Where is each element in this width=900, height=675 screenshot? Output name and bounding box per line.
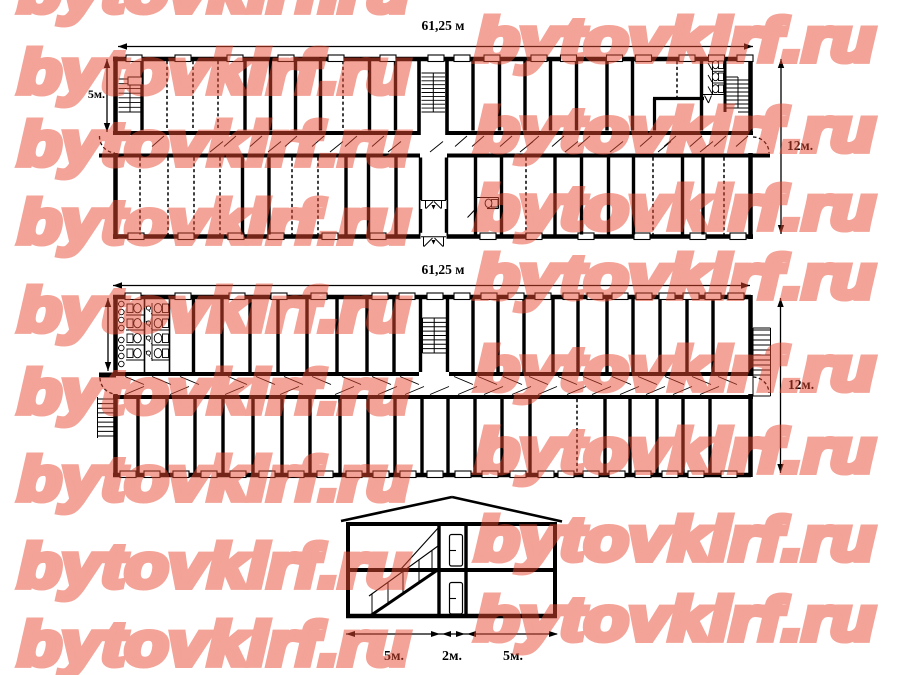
svg-text:bytovkirf.ru: bytovkirf.ru [18,0,410,25]
svg-text:bytovkirf.ru: bytovkirf.ru [475,417,875,485]
svg-text:bytovkirf.ru: bytovkirf.ru [18,276,410,344]
svg-text:bytovkirf.ru: bytovkirf.ru [475,505,875,573]
svg-text:bytovkirf.ru: bytovkirf.ru [18,610,410,675]
svg-text:2м.: 2м. [442,649,462,664]
svg-text:bytovkirf.ru: bytovkirf.ru [475,585,875,653]
svg-text:bytovkirf.ru: bytovkirf.ru [475,174,875,242]
svg-text:61,25 м: 61,25 м [422,262,465,277]
svg-text:bytovkirf.ru: bytovkirf.ru [475,335,875,403]
svg-text:bytovkirf.ru: bytovkirf.ru [475,96,875,164]
svg-text:61,25 м: 61,25 м [422,18,465,33]
svg-text:bytovkirf.ru: bytovkirf.ru [18,188,410,256]
svg-text:bytovkirf.ru: bytovkirf.ru [18,358,410,426]
svg-text:bytovkirf.ru: bytovkirf.ru [18,532,410,600]
svg-text:bytovkirf.ru: bytovkirf.ru [475,6,875,74]
svg-text:bytovkirf.ru: bytovkirf.ru [18,38,410,106]
svg-text:bytovkirf.ru: bytovkirf.ru [18,445,410,513]
svg-text:bytovkirf.ru: bytovkirf.ru [475,243,875,311]
svg-text:bytovkirf.ru: bytovkirf.ru [18,110,410,178]
